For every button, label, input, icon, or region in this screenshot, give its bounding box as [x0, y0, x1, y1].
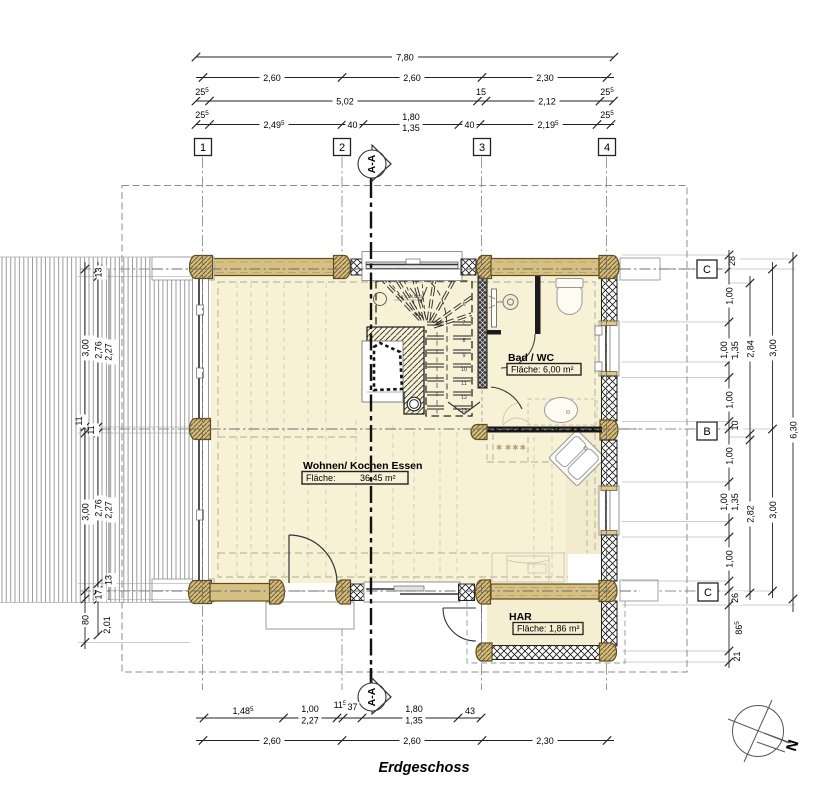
svg-text:6,30: 6,30: [789, 421, 799, 439]
svg-text:17: 17: [94, 589, 104, 599]
svg-text:HAR: HAR: [509, 611, 532, 623]
svg-text:2,60: 2,60: [403, 736, 421, 746]
svg-text:36,45 m²: 36,45 m²: [360, 473, 396, 483]
svg-text:26: 26: [730, 593, 740, 603]
svg-text:1,80: 1,80: [405, 704, 423, 714]
svg-text:1,00: 1,00: [725, 550, 735, 568]
svg-text:3,00: 3,00: [81, 339, 91, 357]
svg-text:4: 4: [604, 142, 610, 154]
svg-text:28: 28: [727, 256, 737, 266]
svg-text:2,27: 2,27: [301, 716, 319, 726]
svg-text:1,35: 1,35: [730, 341, 740, 359]
svg-text:12: 12: [461, 395, 467, 401]
svg-text:10: 10: [730, 420, 740, 430]
svg-text:13: 13: [461, 408, 467, 414]
svg-text:5,02: 5,02: [336, 97, 354, 107]
svg-text:2,60: 2,60: [263, 736, 281, 746]
svg-text:2,76: 2,76: [94, 341, 104, 359]
svg-text:2,27: 2,27: [104, 343, 114, 361]
svg-text:Bad / WC: Bad / WC: [508, 352, 554, 364]
svg-text:1,00: 1,00: [725, 447, 735, 465]
svg-text:2,76: 2,76: [94, 499, 104, 517]
svg-text:9: 9: [462, 353, 465, 359]
svg-text:Fläche:: Fläche:: [306, 473, 336, 483]
svg-text:7,80: 7,80: [396, 53, 414, 63]
svg-text:40: 40: [347, 120, 357, 130]
svg-text:13: 13: [104, 575, 114, 585]
svg-text:1,35: 1,35: [402, 123, 420, 133]
svg-text:1,00: 1,00: [725, 391, 735, 409]
svg-text:2,60: 2,60: [263, 73, 281, 83]
svg-text:2,01: 2,01: [102, 616, 112, 634]
svg-text:1,00: 1,00: [719, 341, 729, 359]
svg-text:Erdgeschoss: Erdgeschoss: [378, 760, 469, 776]
svg-text:40: 40: [464, 120, 474, 130]
svg-text:3,00: 3,00: [768, 501, 778, 519]
svg-text:1,35: 1,35: [730, 493, 740, 511]
svg-text:A-A: A-A: [366, 687, 378, 706]
svg-text:2,82: 2,82: [746, 505, 756, 523]
svg-text:C: C: [704, 587, 712, 599]
svg-text:1,00: 1,00: [301, 704, 319, 714]
svg-text:3,00: 3,00: [81, 503, 91, 521]
svg-text:11: 11: [461, 381, 467, 387]
svg-text:2,84: 2,84: [746, 340, 756, 358]
svg-text:10: 10: [461, 367, 467, 373]
svg-text:3: 3: [479, 142, 485, 154]
svg-text:3,00: 3,00: [768, 339, 778, 357]
svg-text:24 x 18,5/25: 24 x 18,5/25: [398, 294, 423, 299]
svg-text:6: 6: [462, 302, 465, 308]
svg-text:2,27: 2,27: [104, 501, 114, 519]
svg-text:2,60: 2,60: [403, 73, 421, 83]
svg-text:1,35: 1,35: [405, 716, 423, 726]
svg-text:37: 37: [347, 702, 357, 712]
svg-text:Fläche: 6,00 m²: Fläche: 6,00 m²: [511, 365, 574, 375]
svg-text:80: 80: [81, 615, 91, 625]
svg-text:A-A: A-A: [366, 154, 378, 173]
svg-text:15: 15: [476, 87, 486, 97]
svg-text:1,00: 1,00: [725, 287, 735, 305]
svg-text:2,30: 2,30: [536, 73, 554, 83]
svg-text:8: 8: [462, 338, 465, 344]
svg-text:2: 2: [339, 142, 345, 154]
svg-text:43: 43: [465, 706, 475, 716]
svg-text:✱✱✱: ✱✱✱: [505, 443, 527, 452]
svg-text:1,80: 1,80: [402, 112, 420, 122]
svg-text:2,12: 2,12: [538, 97, 556, 107]
svg-text:13: 13: [94, 267, 104, 277]
svg-text:11: 11: [86, 425, 96, 434]
svg-text:1,00: 1,00: [719, 493, 729, 511]
svg-text:1: 1: [200, 142, 206, 154]
svg-text:B: B: [703, 426, 710, 438]
svg-text:✱: ✱: [496, 443, 503, 452]
svg-text:2,30: 2,30: [536, 736, 554, 746]
svg-text:21: 21: [732, 651, 742, 661]
svg-text:Fläche: 1,86 m²: Fläche: 1,86 m²: [517, 624, 580, 634]
svg-text:11: 11: [74, 416, 84, 425]
svg-text:C: C: [703, 264, 711, 276]
svg-text:7: 7: [462, 320, 465, 326]
svg-text:Wohnen/ Kochen Essen: Wohnen/ Kochen Essen: [303, 460, 422, 472]
